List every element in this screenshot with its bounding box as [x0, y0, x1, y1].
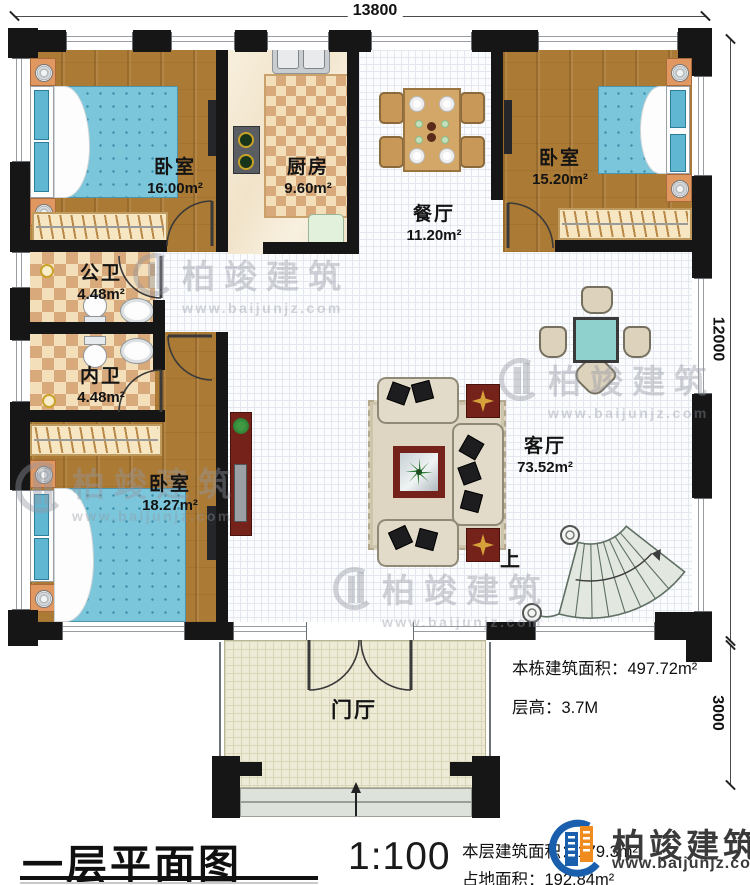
dimension-right-upper-value: 12000: [708, 312, 726, 367]
room-label-bedroom-2: 卧室 15.20m²: [532, 148, 588, 189]
dimension-line-right-lower: [730, 646, 731, 786]
room-label-bedroom-1: 卧室 16.00m²: [147, 157, 203, 198]
room-area: 73.52m²: [517, 459, 573, 477]
stairs-direction-label: 上: [500, 543, 520, 572]
room-label-public-bath: 公卫 4.48m²: [77, 263, 125, 304]
total-area-annotation: 本栋建筑面积：497.72m²: [512, 655, 697, 679]
room-area: 9.60m²: [284, 180, 332, 198]
room-label-foyer: 门厅: [331, 698, 377, 723]
room-name: 卧室: [147, 157, 203, 180]
room-name: 厨房: [284, 157, 332, 180]
floor-height-label: 层高：: [512, 699, 562, 717]
title-underline-shadow: [20, 882, 318, 884]
door-swings: [0, 0, 750, 885]
dimension-line-right-upper: [730, 40, 731, 642]
porch-pillar: [472, 756, 500, 818]
dimension-top-value: 13800: [348, 2, 403, 20]
total-area-value: 497.72m²: [628, 660, 698, 678]
room-name: 门厅: [331, 698, 377, 723]
room-name: 卧室: [142, 474, 198, 497]
porch-pillar: [450, 762, 472, 776]
room-name: 卧室: [532, 148, 588, 171]
room-area: 4.48m²: [77, 286, 125, 304]
room-area: 16.00m²: [147, 180, 203, 198]
room-label-living: 客厅 73.52m²: [517, 436, 573, 477]
floor-height-annotation: 层高：3.7M: [512, 694, 598, 718]
brand-logo-icon: [545, 816, 607, 880]
title-underline: [20, 876, 318, 880]
entry-arrow-icon: [348, 782, 364, 818]
total-area-label: 本栋建筑面积：: [512, 660, 628, 678]
porch-pillar: [240, 762, 262, 776]
room-name: 公卫: [77, 263, 125, 286]
plan-scale: 1:100: [348, 835, 451, 879]
room-label-kitchen: 厨房 9.60m²: [284, 157, 332, 198]
porch-edge: [489, 642, 491, 756]
room-name: 内卫: [77, 366, 125, 389]
room-area: 4.48m²: [77, 389, 125, 407]
floor-plan-page: 柏竣建筑 www.baijunjz.com 柏竣建筑 www.baijunjz.…: [0, 0, 750, 885]
brand-website: www.baijunjz.com: [612, 855, 750, 873]
room-label-dining: 餐厅 11.20m²: [406, 204, 461, 245]
porch-edge: [219, 642, 221, 756]
floor-height-value: 3.7M: [562, 699, 599, 717]
room-label-private-bath: 内卫 4.48m²: [77, 366, 125, 407]
room-area: 18.27m²: [142, 497, 198, 515]
room-label-bedroom-3: 卧室 18.27m²: [142, 474, 198, 515]
room-name: 客厅: [517, 436, 573, 459]
room-name: 餐厅: [406, 204, 461, 227]
footprint-label: 占地面积：: [462, 871, 545, 885]
room-area: 15.20m²: [532, 171, 588, 189]
dimension-right-lower-value: 3000: [708, 690, 726, 736]
porch-pillar: [212, 756, 240, 818]
room-area: 11.20m²: [406, 227, 461, 245]
